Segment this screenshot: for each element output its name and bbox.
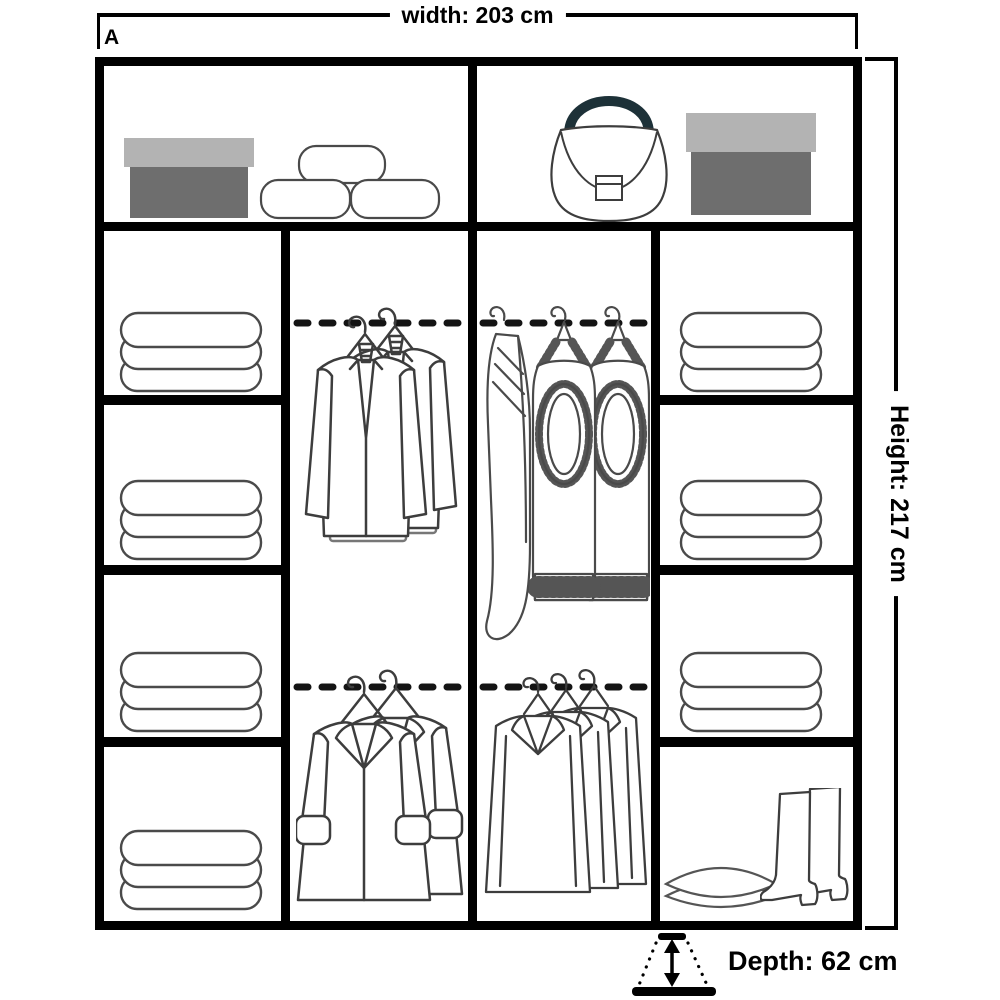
width-dimension-label: width: 203 cm xyxy=(389,2,565,29)
width-dimension-bracket: width: 203 cm xyxy=(97,13,858,49)
hanging-clothes-illustration xyxy=(478,304,650,644)
boots-illustration xyxy=(760,788,854,916)
towel-stack-illustration xyxy=(678,650,824,734)
top-shelf-partition xyxy=(468,66,477,231)
suit-jackets-illustration xyxy=(298,304,466,552)
towel-stack-illustration xyxy=(118,478,264,562)
height-dimension-label: Height: 217 cm xyxy=(884,391,913,597)
towel-stack-illustration xyxy=(678,310,824,394)
towel-stack-illustration xyxy=(678,478,824,562)
wardrobe-layout-diagram: width: 203 cm A xyxy=(0,0,1000,1000)
storage-box-illustration xyxy=(682,111,820,217)
cardigan-illustration xyxy=(486,307,530,639)
column-divider-1 xyxy=(281,222,290,921)
top-shelf-divider xyxy=(104,222,853,231)
right-shelf-divider-3 xyxy=(660,737,853,747)
column-divider-3 xyxy=(651,222,660,921)
left-shelf-divider-2 xyxy=(104,565,281,575)
coats-illustration xyxy=(296,666,466,908)
depth-dimension-label: Depth: 62 cm xyxy=(728,946,898,977)
variant-label: A xyxy=(104,26,119,50)
towel-stack-illustration xyxy=(118,310,264,394)
right-shelf-divider-1 xyxy=(660,395,853,405)
height-dimension-bracket: Height: 217 cm xyxy=(865,57,898,930)
storage-box-illustration xyxy=(121,136,257,220)
left-shelf-divider-1 xyxy=(104,395,281,405)
column-divider-2 xyxy=(468,222,477,921)
towel-stack-illustration xyxy=(118,828,264,912)
right-shelf-divider-2 xyxy=(660,565,853,575)
handbag-illustration xyxy=(548,90,670,222)
depth-icon xyxy=(630,933,720,997)
left-shelf-divider-3 xyxy=(104,737,281,747)
shirts-illustration xyxy=(482,666,652,902)
rolled-towels-illustration xyxy=(258,142,444,220)
towel-stack-illustration xyxy=(118,650,264,734)
